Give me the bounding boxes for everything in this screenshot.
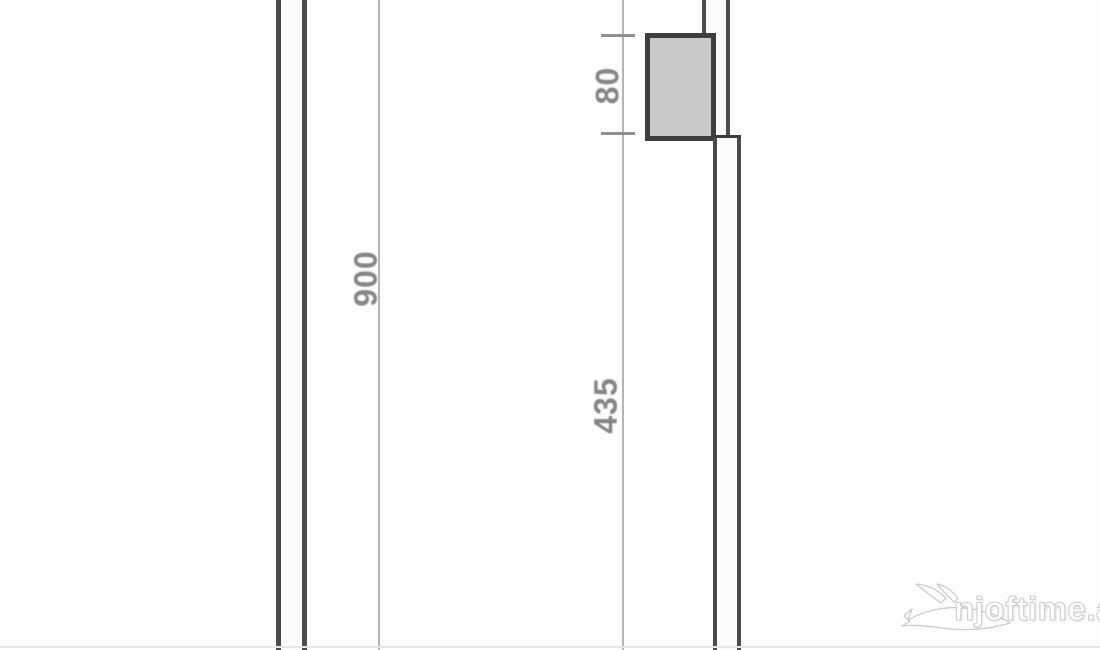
dimension-label-435: 435 <box>588 377 625 433</box>
dimension-line-900 <box>378 0 380 650</box>
floorplan-canvas: 900 80 435 njoftime.al <box>0 0 1100 650</box>
wall-right-lower <box>713 138 741 650</box>
watermark: njoftime.al <box>898 578 1100 640</box>
wall-left <box>276 0 307 650</box>
dimension-tick-bottom <box>601 132 635 135</box>
scan-edge-line <box>0 646 1100 648</box>
dimension-label-80: 80 <box>590 66 627 104</box>
watermark-text: njoftime.al <box>954 590 1100 628</box>
column-rect <box>645 33 716 141</box>
dimension-tick-top <box>601 34 635 37</box>
dimension-label-900: 900 <box>348 250 385 306</box>
